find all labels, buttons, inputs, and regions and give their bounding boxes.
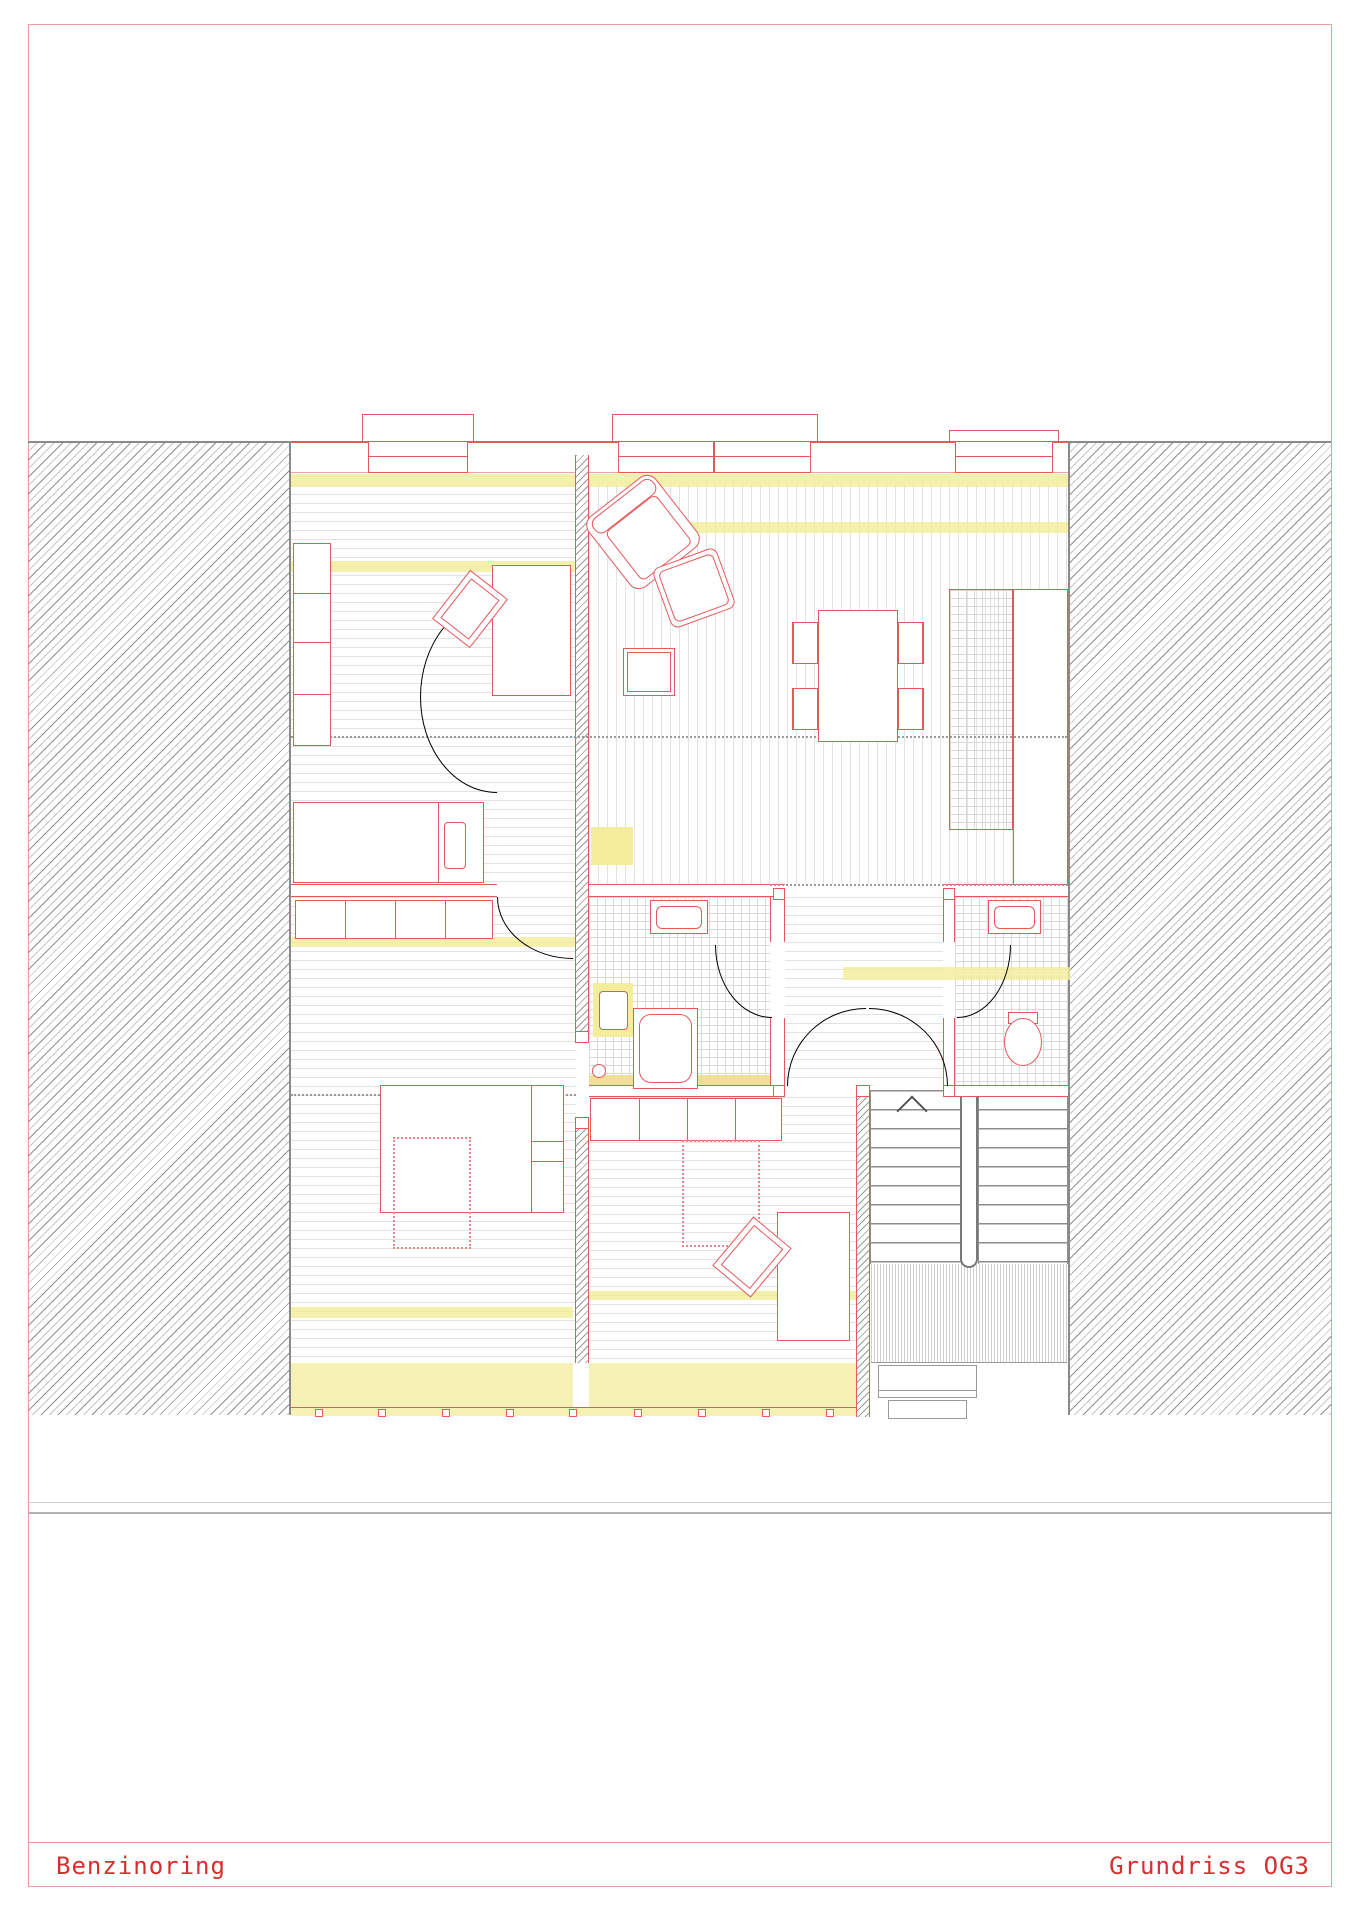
railing-post — [378, 1409, 386, 1417]
room3-sideboard — [590, 1098, 782, 1141]
entry-step-1-line — [878, 1390, 977, 1391]
balcony-railing-line — [291, 1407, 857, 1408]
room1-desk — [492, 565, 571, 696]
stair-landing — [871, 1264, 1067, 1363]
wall-junction — [856, 1085, 870, 1097]
room2-wardrobe — [295, 900, 493, 939]
window-4 — [955, 441, 1053, 473]
dining-chair — [792, 622, 818, 664]
dining-table — [818, 610, 898, 742]
stair-flight-right — [978, 1090, 1068, 1264]
railing-post — [826, 1409, 834, 1417]
floor-drain — [592, 1064, 606, 1078]
wall-bath2-bottom — [948, 1085, 1068, 1097]
highlight-room1-top — [291, 474, 576, 487]
balcony-right — [589, 1363, 857, 1408]
wall-bath1-top — [589, 884, 785, 897]
sideboard-divider — [687, 1099, 688, 1140]
title-bar-separator — [28, 1842, 1331, 1843]
stairwell-wall — [856, 1085, 870, 1417]
sideboard-divider — [735, 1099, 736, 1140]
drawing-sheet: Benzinoring Grundriss OG3 — [0, 0, 1357, 1920]
wall-junction — [943, 1085, 955, 1097]
wall-junction — [575, 1031, 589, 1043]
headboard-divider — [532, 1161, 563, 1162]
bathtub-inner — [639, 1014, 692, 1083]
railing-post — [315, 1409, 323, 1417]
wardrobe-divider — [395, 901, 396, 938]
railing-post — [698, 1409, 706, 1417]
side-table-inner — [627, 652, 671, 692]
dormer-outline-1 — [362, 414, 474, 442]
railing-post — [762, 1409, 770, 1417]
shelf-divider — [294, 694, 330, 695]
window-3 — [714, 441, 811, 473]
wardrobe-divider — [345, 901, 346, 938]
frame-bottom — [28, 1886, 1331, 1887]
railing-post — [569, 1409, 577, 1417]
right-neighbor-hatch — [1068, 441, 1331, 1415]
frame-top — [28, 24, 1331, 25]
double-bed-headboard — [531, 1085, 564, 1213]
frame-right — [1331, 24, 1332, 1887]
window-4-midline — [955, 456, 1053, 457]
entry-step-2 — [888, 1400, 967, 1419]
shelf-divider — [294, 593, 330, 594]
dining-chair — [898, 622, 924, 664]
knee-wall-dashed-north — [291, 736, 1067, 738]
stair-railing — [960, 1090, 978, 1268]
railing-post — [442, 1409, 450, 1417]
drawing-title: Grundriss OG3 — [1000, 1852, 1310, 1880]
wall-junction — [773, 888, 785, 900]
single-bed-pillow — [444, 822, 466, 869]
sideboard-divider — [639, 1099, 640, 1140]
dining-chair — [792, 688, 818, 730]
dining-chair — [898, 688, 924, 730]
double-bed-dashed-outline — [393, 1137, 471, 1249]
window-1 — [368, 441, 468, 473]
entry-step-1 — [878, 1365, 977, 1398]
wall-bath2-left-a — [943, 897, 955, 942]
room1-shelf — [293, 543, 331, 746]
shelf-divider — [294, 642, 330, 643]
headboard-divider — [532, 1141, 563, 1142]
project-title: Benzinoring — [56, 1852, 226, 1880]
wall-bath1-right-b — [770, 1018, 785, 1085]
single-bed-divider — [438, 802, 439, 883]
window-2-3-midline — [618, 456, 811, 457]
bath1-washbasin-bowl — [656, 906, 702, 929]
wall-bath1-right-a — [770, 897, 785, 942]
bath2-washbasin-bowl — [994, 906, 1035, 929]
shower-tray — [599, 991, 628, 1030]
dormer-outline-2 — [612, 414, 818, 442]
left-neighbor-hatch — [28, 441, 291, 1415]
wardrobe-divider — [445, 901, 446, 938]
railing-post — [634, 1409, 642, 1417]
wall-room1-room2 — [291, 884, 497, 897]
central-wall-lower — [575, 1117, 589, 1363]
highlight-room2-beam-low — [291, 1307, 573, 1318]
ground-line-2 — [28, 1512, 1331, 1514]
wall-junction — [773, 1085, 785, 1097]
window-2 — [618, 441, 714, 473]
ground-line-1 — [28, 1502, 1331, 1503]
kitchen-tiles — [949, 589, 1013, 830]
railing-post — [506, 1409, 514, 1417]
central-wall-upper — [575, 455, 589, 1043]
window-1-midline — [368, 456, 468, 457]
wall-junction — [943, 888, 955, 900]
balcony-left — [291, 1363, 573, 1408]
toilet-bowl — [1004, 1018, 1042, 1066]
highlight-duct — [591, 827, 633, 865]
room3-desk — [777, 1212, 850, 1341]
wall-junction — [575, 1117, 589, 1129]
stair-opening-dashed — [770, 884, 1068, 886]
